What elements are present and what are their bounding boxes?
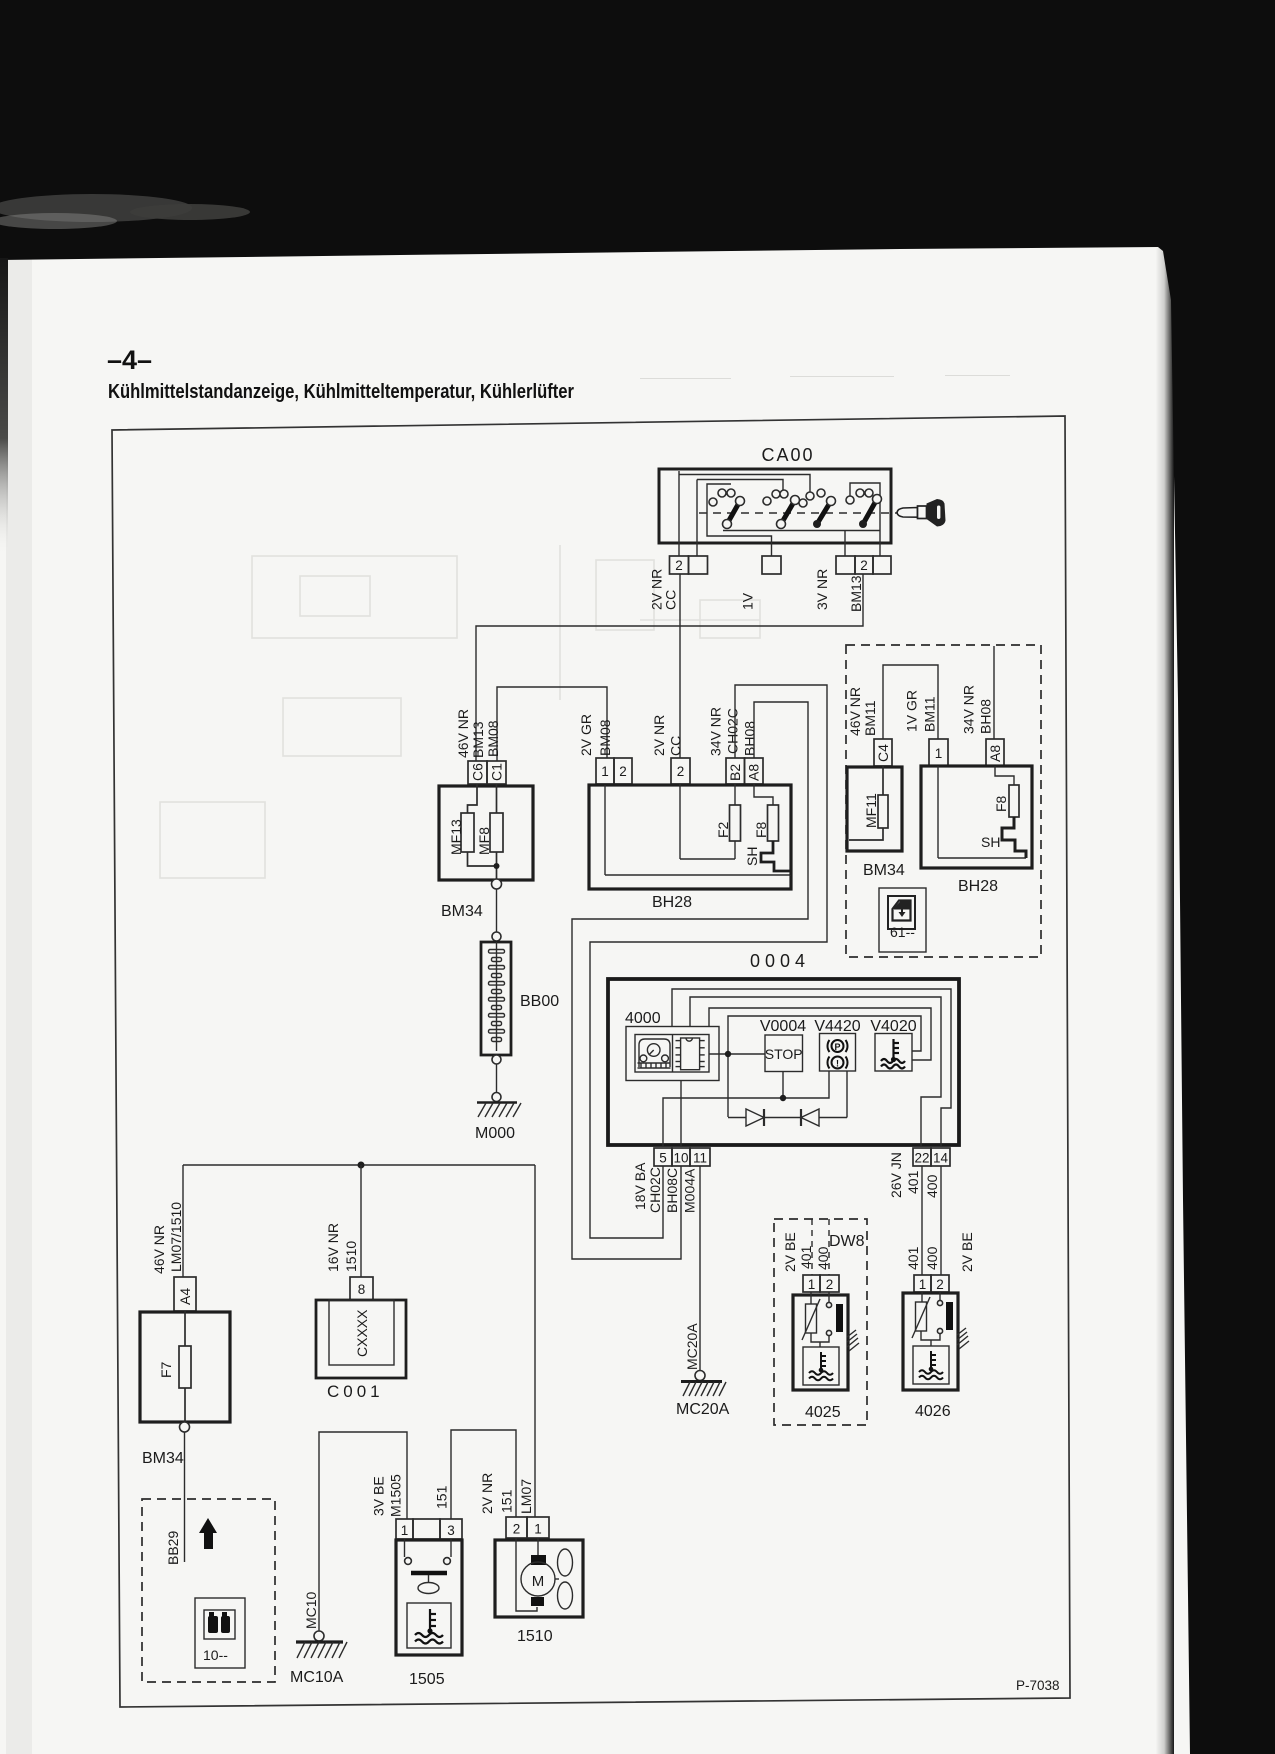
svg-text:2: 2 <box>936 1277 944 1292</box>
svg-text:3V BE: 3V BE <box>371 1476 387 1516</box>
svg-text:14: 14 <box>933 1151 949 1166</box>
svg-text:F8: F8 <box>753 821 769 838</box>
svg-text:MC20A: MC20A <box>676 1401 730 1418</box>
svg-text:1505: 1505 <box>409 1671 445 1688</box>
svg-text:26V JN: 26V JN <box>888 1152 904 1198</box>
svg-text:2V NR: 2V NR <box>479 1473 495 1514</box>
svg-text:4025: 4025 <box>805 1404 841 1421</box>
svg-text:401: 401 <box>905 1246 921 1270</box>
svg-text:!: ! <box>836 1059 839 1069</box>
svg-text:1: 1 <box>401 1523 409 1538</box>
svg-text:BB00: BB00 <box>520 993 559 1010</box>
svg-text:C4: C4 <box>875 744 891 762</box>
svg-text:401: 401 <box>798 1245 814 1269</box>
svg-text:BH08: BH08 <box>742 721 758 756</box>
svg-text:10--: 10-- <box>203 1647 228 1663</box>
svg-text:11: 11 <box>693 1151 707 1166</box>
svg-text:BH08: BH08 <box>978 699 994 734</box>
svg-text:1V: 1V <box>740 592 756 610</box>
svg-text:2V BE: 2V BE <box>959 1232 975 1272</box>
svg-text:1510: 1510 <box>343 1241 359 1272</box>
svg-text:2: 2 <box>860 558 868 573</box>
svg-text:1V GR: 1V GR <box>904 690 920 732</box>
svg-text:2V NR: 2V NR <box>651 715 667 756</box>
svg-text:34V NR: 34V NR <box>961 685 977 734</box>
svg-text:M000: M000 <box>475 1125 515 1142</box>
svg-text:MC10A: MC10A <box>290 1669 344 1686</box>
svg-text:1: 1 <box>935 746 943 761</box>
svg-text:V4420: V4420 <box>814 1018 860 1035</box>
svg-text:V0004: V0004 <box>760 1018 806 1035</box>
svg-text:2: 2 <box>677 764 685 779</box>
svg-text:MC10: MC10 <box>303 1591 319 1629</box>
svg-text:16V NR: 16V NR <box>325 1223 341 1272</box>
svg-text:MF8: MF8 <box>476 827 492 855</box>
svg-text:3V NR: 3V NR <box>814 569 830 610</box>
svg-text:61--: 61-- <box>890 924 915 940</box>
svg-text:400: 400 <box>924 1174 940 1198</box>
svg-text:2: 2 <box>513 1522 521 1537</box>
svg-text:————————: ———————— <box>790 368 894 383</box>
svg-text:C001: C001 <box>327 1382 384 1401</box>
svg-text:———————: ——————— <box>640 370 731 385</box>
svg-text:10: 10 <box>673 1151 688 1166</box>
svg-text:M: M <box>532 1573 545 1590</box>
svg-text:CH02C: CH02C <box>725 708 741 754</box>
svg-text:STOP: STOP <box>765 1046 803 1062</box>
svg-text:A4: A4 <box>177 1288 193 1305</box>
svg-text:BM08: BM08 <box>597 719 613 756</box>
svg-text:MF11: MF11 <box>863 793 879 828</box>
svg-text:BM13: BM13 <box>470 721 486 758</box>
svg-text:151: 151 <box>434 1485 450 1509</box>
svg-text:–4–: –4– <box>107 345 152 375</box>
svg-text:C6: C6 <box>470 763 486 781</box>
svg-text:CA00: CA00 <box>761 445 814 465</box>
svg-text:2: 2 <box>826 1277 834 1292</box>
svg-text:400: 400 <box>924 1246 940 1270</box>
svg-text:2V GR: 2V GR <box>578 714 594 756</box>
svg-text:BB29: BB29 <box>165 1531 181 1565</box>
svg-text:8: 8 <box>358 1282 366 1297</box>
svg-text:DW8: DW8 <box>829 1233 865 1250</box>
svg-text:BM11: BM11 <box>862 700 878 736</box>
svg-text:4000: 4000 <box>625 1010 661 1027</box>
svg-text:2: 2 <box>675 558 683 573</box>
svg-text:CC: CC <box>663 590 679 610</box>
svg-text:SH: SH <box>744 847 760 866</box>
svg-text:CXXXX: CXXXX <box>354 1309 370 1357</box>
svg-text:—————: ————— <box>945 367 1010 382</box>
svg-text:2: 2 <box>619 764 627 779</box>
svg-text:MF13: MF13 <box>448 819 464 855</box>
svg-text:34V NR: 34V NR <box>708 707 724 756</box>
svg-text:4026: 4026 <box>915 1403 951 1420</box>
svg-text:BH28: BH28 <box>652 894 692 911</box>
svg-text:F8: F8 <box>993 795 1009 812</box>
svg-text:1510: 1510 <box>517 1628 553 1645</box>
svg-text:BH28: BH28 <box>958 878 998 895</box>
svg-text:P: P <box>834 1042 840 1052</box>
svg-text:0004: 0004 <box>750 951 810 971</box>
svg-text:1: 1 <box>919 1277 927 1292</box>
svg-text:46V NR: 46V NR <box>151 1225 167 1274</box>
svg-text:C1: C1 <box>489 763 505 781</box>
svg-text:MC20A: MC20A <box>684 1323 700 1370</box>
svg-text:Kühlmittelstandanzeige, Kühlmi: Kühlmittelstandanzeige, Kühlmitteltemper… <box>108 380 574 403</box>
svg-text:1: 1 <box>601 764 609 779</box>
svg-text:5: 5 <box>659 1151 667 1166</box>
svg-text:1: 1 <box>534 1522 542 1537</box>
svg-text:18V BA: 18V BA <box>632 1162 648 1210</box>
svg-text:A8: A8 <box>746 764 762 781</box>
svg-text:400: 400 <box>815 1246 831 1270</box>
svg-text:F7: F7 <box>158 1361 174 1378</box>
svg-text:22: 22 <box>914 1151 929 1166</box>
svg-text:BM34: BM34 <box>441 903 483 920</box>
svg-text:SH: SH <box>981 834 1000 850</box>
svg-text:BM11: BM11 <box>922 696 938 732</box>
svg-text:CH02C: CH02C <box>647 1167 663 1213</box>
svg-text:BM34: BM34 <box>142 1450 184 1467</box>
svg-text:1: 1 <box>808 1277 816 1292</box>
svg-text:BM08: BM08 <box>485 720 501 757</box>
svg-text:401: 401 <box>905 1170 921 1194</box>
svg-text:M004A: M004A <box>682 1168 698 1213</box>
svg-text:2V BE: 2V BE <box>782 1232 798 1272</box>
svg-text:B2: B2 <box>727 764 743 781</box>
svg-text:BH08C: BH08C <box>664 1168 680 1213</box>
svg-text:46V NR: 46V NR <box>455 709 471 758</box>
svg-text:F2: F2 <box>715 821 731 838</box>
svg-text:LM07/1510: LM07/1510 <box>168 1202 184 1272</box>
svg-text:151: 151 <box>499 1489 515 1513</box>
svg-text:BM13: BM13 <box>848 575 864 612</box>
svg-text:M1505: M1505 <box>388 1474 404 1517</box>
svg-text:CC: CC <box>668 736 684 756</box>
svg-text:A8: A8 <box>987 745 1003 762</box>
svg-text:BM34: BM34 <box>863 862 905 879</box>
svg-text:3: 3 <box>447 1523 455 1538</box>
svg-text:P-7038: P-7038 <box>1016 1678 1060 1693</box>
svg-text:LM07: LM07 <box>518 1479 534 1514</box>
svg-text:46V NR: 46V NR <box>847 687 863 736</box>
svg-text:V4020: V4020 <box>870 1018 916 1035</box>
